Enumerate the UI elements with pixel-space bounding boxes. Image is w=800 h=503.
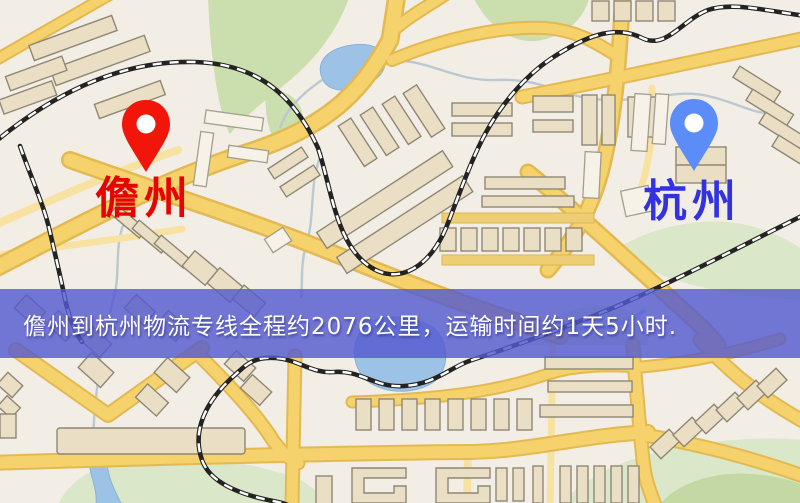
- route-info-text: 儋州到杭州物流专线全程约2076公里，运输时间约1天5小时.: [0, 307, 677, 341]
- destination-pin-shape: [670, 99, 718, 171]
- destination-pin-icon: [668, 98, 720, 172]
- destination-pin-hole: [685, 114, 704, 133]
- destination-city-label: 杭州: [643, 180, 741, 224]
- map-graphic: [0, 0, 800, 503]
- origin-pin-shape: [122, 100, 170, 172]
- origin-city-label: 儋州: [95, 177, 193, 221]
- route-info-banner: 儋州到杭州物流专线全程约2076公里，运输时间约1天5小时.: [0, 289, 800, 358]
- origin-pin-icon: [120, 99, 172, 173]
- route-map: 儋州 杭州 儋州到杭州物流专线全程约2076公里，运输时间约1天5小时.: [0, 0, 800, 503]
- origin-pin-hole: [137, 115, 156, 134]
